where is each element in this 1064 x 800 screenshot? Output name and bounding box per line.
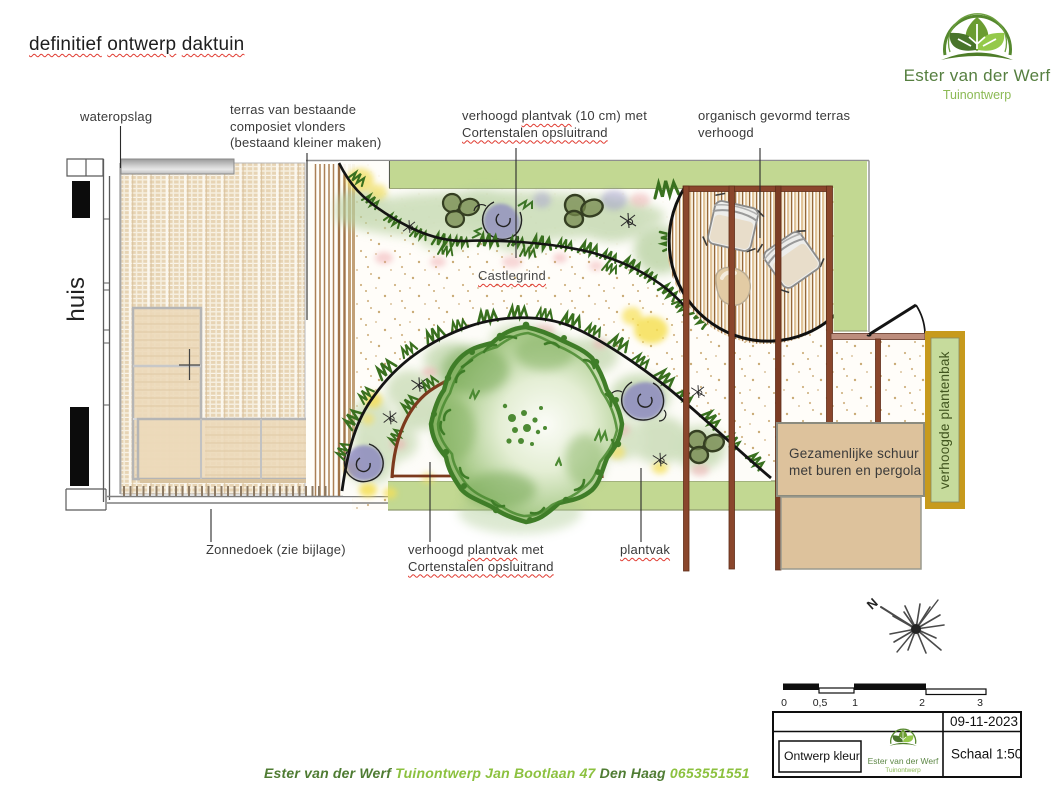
svg-text:3: 3 (977, 697, 983, 709)
svg-text:Schaal 1:50: Schaal 1:50 (951, 747, 1022, 762)
svg-text:09-11-2023: 09-11-2023 (950, 714, 1018, 729)
svg-text:Tuinontwerp: Tuinontwerp (943, 88, 1011, 102)
svg-text:1: 1 (852, 697, 858, 709)
svg-text:0: 0 (781, 697, 787, 709)
svg-text:Tuinontwerp: Tuinontwerp (885, 767, 921, 774)
svg-text:Ester van der Werf: Ester van der Werf (904, 66, 1051, 85)
svg-text:0,5: 0,5 (813, 697, 828, 709)
svg-text:Ontwerp kleur: Ontwerp kleur (784, 749, 860, 763)
svg-text:Ester van der Werf: Ester van der Werf (868, 756, 939, 766)
svg-text:2: 2 (919, 697, 925, 709)
